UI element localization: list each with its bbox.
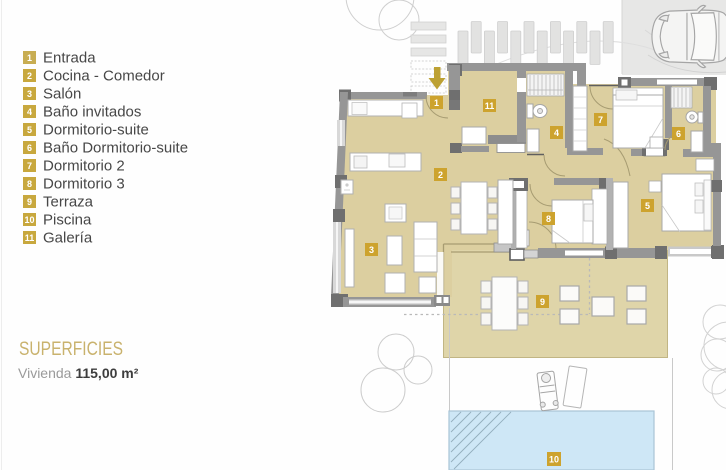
svg-text:SUPERFICIES: SUPERFICIES	[19, 338, 123, 360]
svg-text:3: 3	[369, 245, 374, 255]
svg-text:Baño invitados: Baño invitados	[43, 104, 141, 121]
svg-text:Dormitorio 2: Dormitorio 2	[43, 158, 125, 175]
svg-text:4: 4	[27, 107, 32, 117]
svg-text:3: 3	[27, 89, 32, 99]
svg-text:8: 8	[546, 214, 551, 224]
svg-text:7: 7	[27, 161, 32, 171]
svg-text:11: 11	[485, 101, 495, 111]
svg-text:6: 6	[27, 143, 32, 153]
svg-text:5: 5	[645, 201, 650, 211]
svg-text:8: 8	[27, 179, 32, 189]
svg-text:6: 6	[676, 129, 681, 139]
svg-text:10: 10	[549, 455, 559, 465]
svg-text:9: 9	[27, 197, 32, 207]
svg-text:7: 7	[598, 115, 603, 125]
svg-text:1: 1	[434, 98, 439, 108]
svg-text:5: 5	[27, 125, 32, 135]
svg-text:Vivienda 115,00 m²: Vivienda 115,00 m²	[18, 365, 139, 381]
svg-text:Entrada: Entrada	[43, 50, 96, 67]
svg-text:4: 4	[554, 128, 559, 138]
svg-text:Baño Dormitorio-suite: Baño Dormitorio-suite	[43, 140, 188, 157]
svg-text:Piscina: Piscina	[43, 212, 92, 229]
svg-text:11: 11	[25, 233, 35, 243]
svg-text:Dormitorio-suite: Dormitorio-suite	[43, 122, 149, 139]
svg-text:Galería: Galería	[43, 230, 93, 247]
svg-text:Terraza: Terraza	[43, 194, 94, 211]
svg-text:1: 1	[27, 53, 32, 63]
svg-text:2: 2	[27, 71, 32, 81]
svg-text:Cocina - Comedor: Cocina - Comedor	[43, 68, 165, 85]
svg-text:9: 9	[540, 297, 545, 307]
svg-text:10: 10	[24, 215, 34, 225]
svg-text:2: 2	[438, 170, 443, 180]
svg-text:Salón: Salón	[43, 86, 81, 103]
svg-text:Dormitorio 3: Dormitorio 3	[43, 176, 125, 193]
